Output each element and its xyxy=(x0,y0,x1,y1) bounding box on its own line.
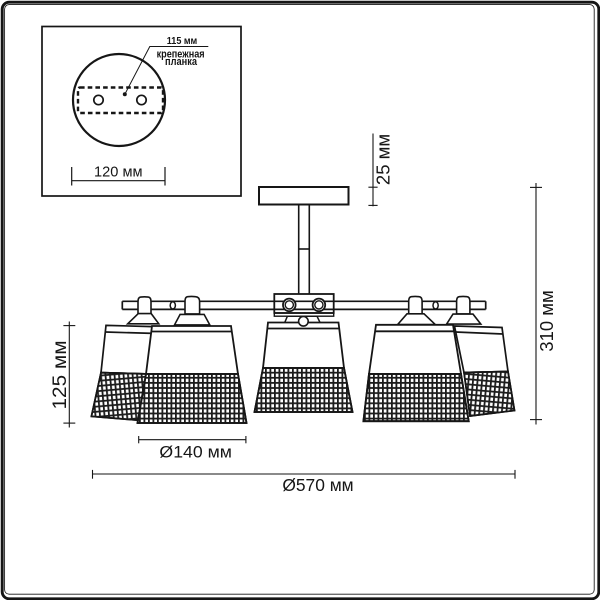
svg-text:310 мм: 310 мм xyxy=(536,290,557,351)
svg-text:120 мм: 120 мм xyxy=(94,165,142,181)
svg-text:25 мм: 25 мм xyxy=(373,134,394,185)
svg-text:Ø570 мм: Ø570 мм xyxy=(282,475,353,495)
svg-text:Ø140 мм: Ø140 мм xyxy=(159,442,232,461)
svg-text:125 мм: 125 мм xyxy=(49,341,71,410)
svg-text:планка: планка xyxy=(165,56,198,68)
svg-text:115 мм: 115 мм xyxy=(167,36,198,47)
